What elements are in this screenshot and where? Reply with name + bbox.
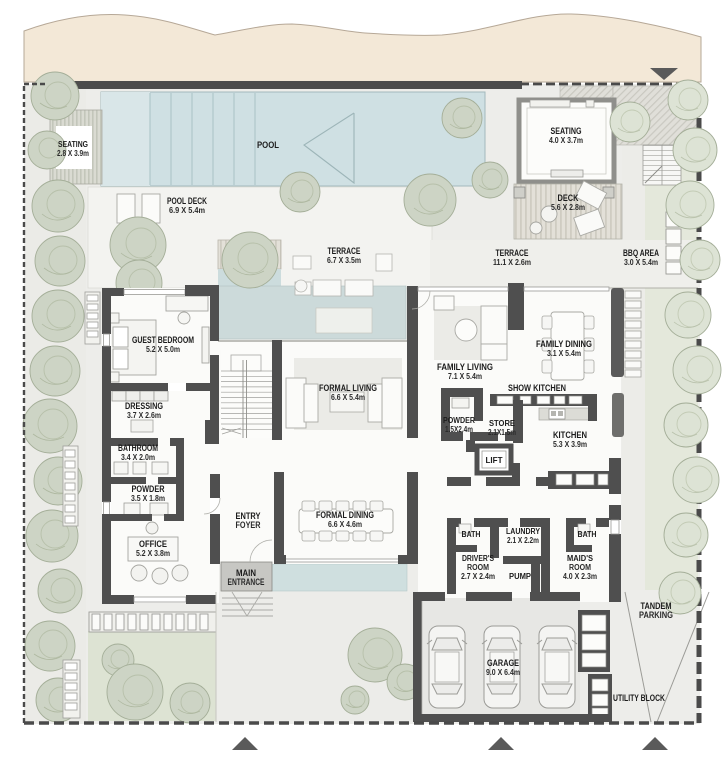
- svg-text:TERRACE: TERRACE: [496, 248, 529, 258]
- svg-text:3.1 X 5.4m: 3.1 X 5.4m: [547, 349, 581, 358]
- svg-text:DRESSING: DRESSING: [125, 401, 163, 411]
- svg-text:STORE: STORE: [489, 418, 515, 428]
- svg-text:9.0 X 6.4m: 9.0 X 6.4m: [486, 668, 520, 677]
- svg-text:2.8 X 3.9m: 2.8 X 3.9m: [57, 149, 89, 158]
- svg-text:5.3 X 3.9m: 5.3 X 3.9m: [553, 440, 587, 449]
- svg-text:PUMP: PUMP: [509, 571, 531, 581]
- svg-text:SEATING: SEATING: [551, 126, 582, 136]
- svg-text:6.6 X 4.6m: 6.6 X 4.6m: [328, 520, 362, 529]
- svg-text:FORMAL DINING: FORMAL DINING: [316, 510, 374, 520]
- svg-text:POWDER: POWDER: [443, 415, 476, 425]
- svg-text:6.7 X 3.5m: 6.7 X 3.5m: [327, 256, 361, 265]
- svg-text:6.9 X 5.4m: 6.9 X 5.4m: [169, 206, 205, 215]
- svg-text:4.0 X 3.7m: 4.0 X 3.7m: [549, 136, 583, 145]
- svg-text:KITCHEN: KITCHEN: [553, 430, 587, 440]
- svg-text:POOL DECK: POOL DECK: [167, 196, 207, 206]
- svg-text:3.5 X 1.8m: 3.5 X 1.8m: [131, 494, 165, 503]
- svg-text:3.0 X 5.4m: 3.0 X 5.4m: [624, 258, 658, 267]
- svg-text:FORMAL LIVING: FORMAL LIVING: [319, 383, 377, 393]
- svg-text:BATH: BATH: [462, 529, 481, 539]
- svg-text:1.5X2.4m: 1.5X2.4m: [445, 425, 473, 434]
- svg-text:TERRACE: TERRACE: [328, 246, 361, 256]
- svg-text:FOYER: FOYER: [236, 520, 261, 530]
- svg-text:3.7 X 2.6m: 3.7 X 2.6m: [127, 411, 161, 420]
- svg-text:LAUNDRY: LAUNDRY: [506, 526, 540, 536]
- svg-text:11.1 X 2.6m: 11.1 X 2.6m: [493, 258, 531, 267]
- svg-text:DECK: DECK: [558, 193, 579, 203]
- svg-text:PARKING: PARKING: [639, 610, 673, 620]
- svg-text:FAMILY DINING: FAMILY DINING: [536, 339, 592, 349]
- svg-text:ENTRANCE: ENTRANCE: [228, 577, 265, 587]
- svg-text:BATH: BATH: [578, 529, 597, 539]
- svg-text:ROOM: ROOM: [467, 562, 489, 572]
- svg-text:SEATING: SEATING: [58, 139, 88, 149]
- svg-text:BATHROOM: BATHROOM: [118, 443, 158, 453]
- svg-text:GARAGE: GARAGE: [487, 658, 519, 668]
- svg-text:5.2 X 3.8m: 5.2 X 3.8m: [136, 549, 170, 558]
- svg-text:6.6 X 5.4m: 6.6 X 5.4m: [331, 393, 365, 402]
- svg-text:POWDER: POWDER: [132, 484, 165, 494]
- svg-text:2.1X1.5m: 2.1X1.5m: [488, 428, 516, 437]
- svg-text:ROOM: ROOM: [569, 562, 591, 572]
- svg-text:SHOW KITCHEN: SHOW KITCHEN: [508, 383, 566, 393]
- svg-text:GUEST BEDROOM: GUEST BEDROOM: [132, 335, 194, 345]
- svg-text:5.2 X 5.0m: 5.2 X 5.0m: [146, 345, 180, 354]
- svg-text:7.1 X 5.4m: 7.1 X 5.4m: [448, 372, 482, 381]
- svg-text:5.6 X 2.8m: 5.6 X 2.8m: [551, 203, 585, 212]
- svg-text:UTILITY BLOCK: UTILITY BLOCK: [613, 693, 665, 703]
- svg-text:3.4 X 2.0m: 3.4 X 2.0m: [121, 453, 155, 462]
- svg-text:2.1 X 2.2m: 2.1 X 2.2m: [507, 536, 539, 545]
- svg-text:OFFICE: OFFICE: [139, 539, 167, 549]
- svg-text:POOL: POOL: [257, 140, 279, 151]
- svg-text:FAMILY LIVING: FAMILY LIVING: [437, 362, 493, 372]
- svg-text:4.0 X 2.3m: 4.0 X 2.3m: [563, 572, 597, 581]
- svg-text:BBQ AREA: BBQ AREA: [623, 248, 659, 258]
- svg-text:LIFT: LIFT: [486, 455, 504, 465]
- svg-text:2.7 X 2.4m: 2.7 X 2.4m: [461, 572, 495, 581]
